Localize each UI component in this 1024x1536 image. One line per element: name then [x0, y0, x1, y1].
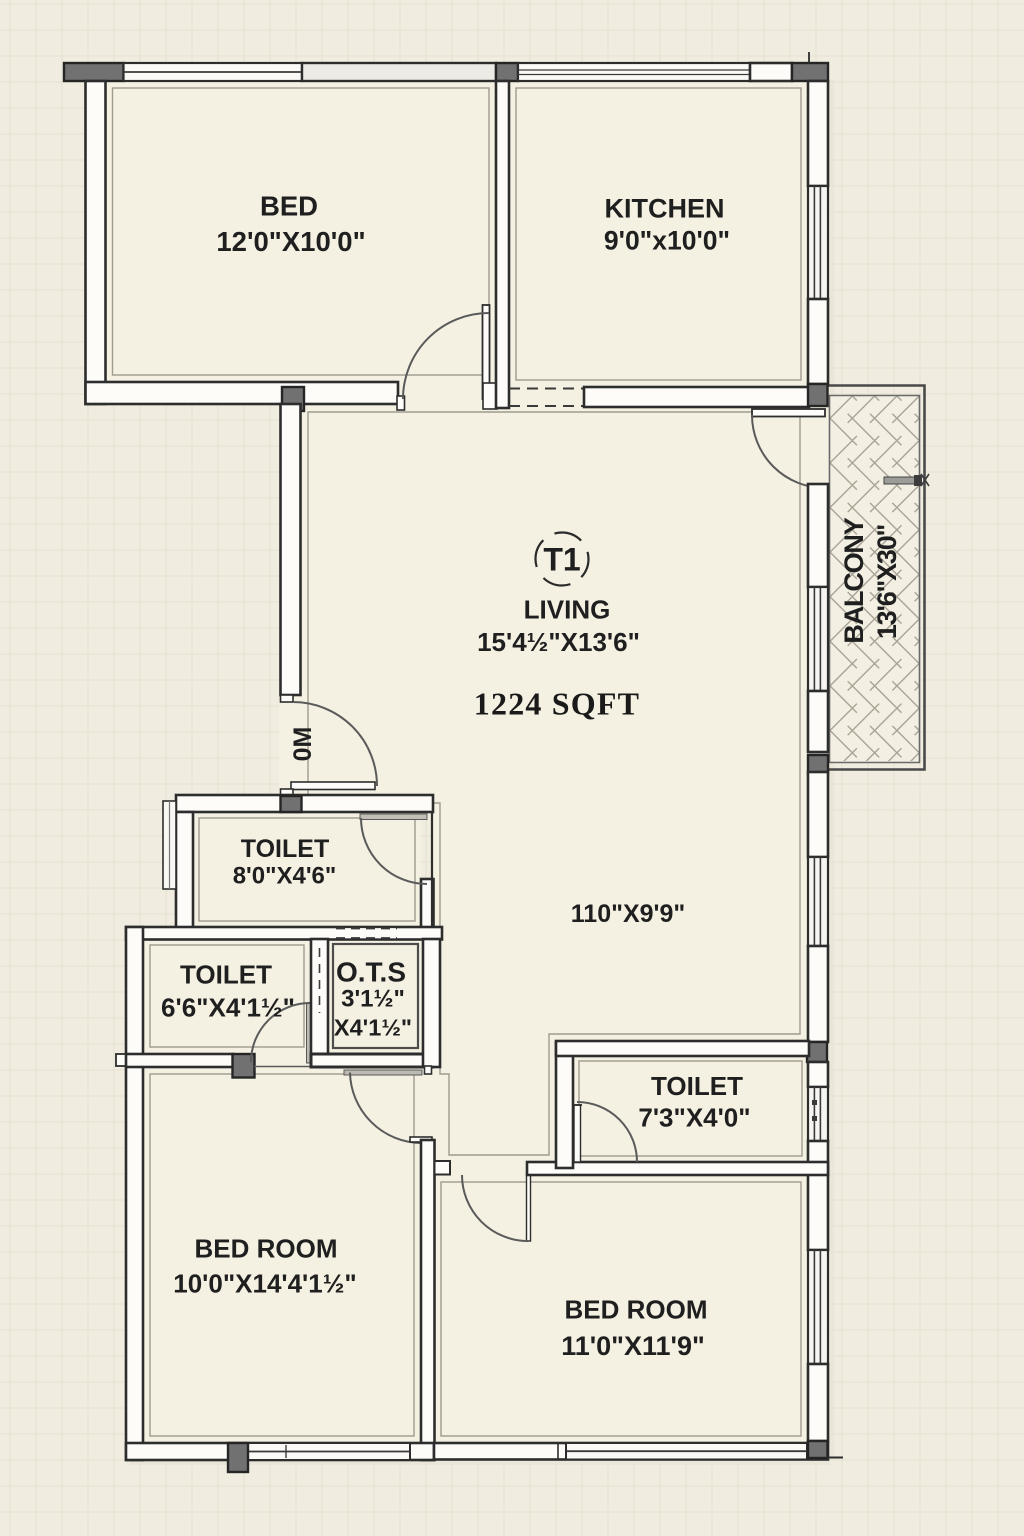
- svg-text:11'0"X11'9": 11'0"X11'9": [561, 1331, 705, 1361]
- svg-text:TOILET: TOILET: [180, 960, 272, 990]
- svg-text:BED ROOM: BED ROOM: [565, 1295, 708, 1325]
- svg-text:0M: 0M: [289, 727, 317, 762]
- svg-text:TOILET: TOILET: [241, 835, 329, 863]
- svg-text:O.T.S: O.T.S: [336, 957, 406, 988]
- svg-text:BED ROOM: BED ROOM: [195, 1234, 338, 1264]
- svg-text:3'1½": 3'1½": [341, 986, 405, 1013]
- svg-text:KITCHEN: KITCHEN: [605, 194, 725, 224]
- svg-text:8'0"X4'6": 8'0"X4'6": [233, 863, 337, 890]
- svg-text:6'6"X4'1½": 6'6"X4'1½": [161, 993, 295, 1023]
- svg-text:T1: T1: [543, 542, 580, 578]
- svg-text:15'4½"X13'6": 15'4½"X13'6": [477, 627, 640, 657]
- svg-text:TOILET: TOILET: [651, 1071, 743, 1101]
- svg-text:12'0"X10'0": 12'0"X10'0": [216, 226, 365, 257]
- svg-text:1224 SQFT: 1224 SQFT: [474, 686, 640, 722]
- svg-text:7'3"X4'0": 7'3"X4'0": [638, 1103, 750, 1133]
- svg-text:BALCONY: BALCONY: [839, 517, 869, 643]
- svg-text:13'6"X30": 13'6"X30": [872, 524, 902, 639]
- svg-text:9'0"x10'0": 9'0"x10'0": [604, 226, 730, 256]
- svg-text:X4'1½": X4'1½": [334, 1015, 412, 1041]
- svg-text:110"X9'9": 110"X9'9": [571, 900, 685, 928]
- svg-text:LIVING: LIVING: [524, 595, 611, 625]
- svg-text:10'0"X14'4'1½": 10'0"X14'4'1½": [173, 1269, 356, 1299]
- svg-text:BED: BED: [260, 191, 318, 222]
